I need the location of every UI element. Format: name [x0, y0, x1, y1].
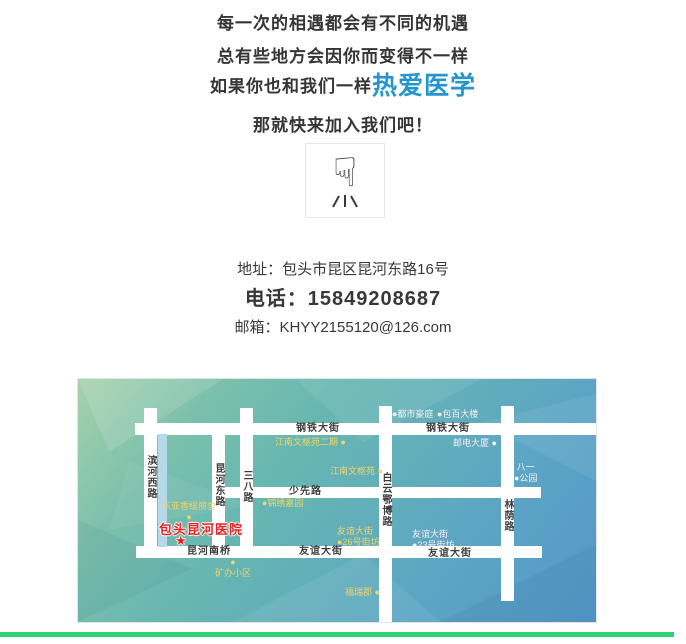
finger-down-icon: ☟: [333, 153, 357, 193]
hero-line-2: 总有些地方会因你而变得不一样: [0, 42, 686, 67]
poi-youdian-building: 邮电大厦 ●: [453, 438, 497, 449]
poi-dushi-haoting: ●都市豪庭: [392, 409, 433, 420]
street-label-shaoxian: 少先路: [289, 486, 322, 498]
poi-youyi-23-block: 友谊大街 ●23号街坊: [412, 529, 454, 551]
poi-kuangban-xiaoqu: ● 矿办小区: [215, 557, 251, 579]
burst-lines-icon: [324, 194, 366, 208]
hero-highlight-text: 热爱医学: [372, 72, 476, 100]
hero-line-1: 每一次的相遇都会有不同的机遇: [0, 9, 686, 34]
street-label-sanba: 三八路: [240, 470, 253, 503]
street-label-binhe-west: 滨河西路: [144, 455, 157, 499]
poi-jiangnan-wenshuyuan-2: 江南文枢苑二期 ●: [275, 437, 346, 448]
address-text: 地址：包头市昆区昆河东路16号: [0, 258, 686, 279]
street-label-baiyun-ebo: 白云鄂博路: [379, 472, 392, 527]
poi-furui-jun: 福瑞郡 ●: [345, 587, 380, 598]
poi-bayi-park: 八一 ●公园: [514, 462, 537, 484]
street-label-linyin: 林荫路: [501, 499, 514, 532]
poi-youyi-26-block: 友谊大街 ●26号街坊: [337, 526, 379, 548]
hospital-location-map: 钢铁大街 钢铁大街 少先路 昆河南桥 友谊大街 友谊大街 滨河西路 昆河东路 三…: [77, 378, 597, 623]
footer-accent-bar: [0, 632, 674, 637]
hospital-name-label: 包头昆河医院: [159, 519, 243, 538]
hero-line-3-prefix: 如果你也和我们一样: [210, 77, 372, 96]
email-text: 邮箱：KHYY2155120@126.com: [0, 316, 686, 337]
street-label-gangtie-right: 钢铁大街: [426, 423, 470, 435]
poi-jiangnan-wenshuyuan: 江南文枢苑 ●: [330, 466, 383, 477]
poi-jinxiu-jiayuan: ●锦绣嘉园: [262, 498, 303, 509]
phone-text: 电话：15849208687: [0, 282, 686, 311]
poi-baobai-building: ●包百大楼: [437, 409, 478, 420]
hero-line-4: 那就快来加入我们吧！: [0, 111, 686, 136]
hero-line-3: 如果你也和我们一样热爱医学: [0, 72, 686, 101]
hospital-star-icon: ★: [175, 533, 187, 549]
road-gangtie-street: [135, 423, 597, 435]
street-label-gangtie-left: 钢铁大街: [296, 423, 340, 435]
pointer-box: ☟: [305, 143, 385, 218]
